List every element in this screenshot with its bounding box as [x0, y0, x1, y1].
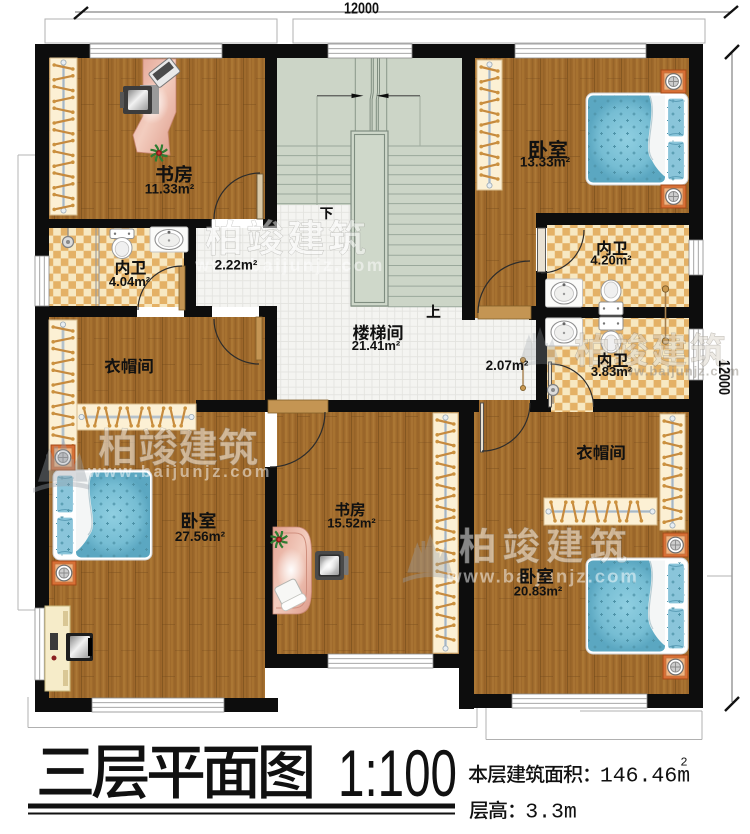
svg-text:2.22m²: 2.22m² [215, 257, 258, 272]
svg-text:1:100: 1:100 [338, 736, 457, 810]
svg-text:11.33m²: 11.33m² [145, 181, 195, 196]
svg-text:146.46m: 146.46m [600, 765, 690, 789]
svg-text:www.baijunjz.com: www.baijunjz.com [87, 463, 272, 481]
svg-text:4.04m²: 4.04m² [109, 274, 151, 289]
svg-text:2: 2 [680, 755, 687, 769]
svg-text:3.3m: 3.3m [525, 801, 577, 825]
svg-text:2.07m²: 2.07m² [486, 358, 529, 373]
svg-text:21.41m²: 21.41m² [352, 338, 401, 353]
svg-text:27.56m²: 27.56m² [175, 529, 226, 544]
svg-text:15.52m²: 15.52m² [327, 516, 376, 531]
svg-text:12000: 12000 [715, 360, 732, 395]
svg-text:4.20m²: 4.20m² [590, 253, 632, 268]
svg-text:3.83m²: 3.83m² [591, 364, 633, 379]
svg-text:13.33m²: 13.33m² [520, 154, 571, 169]
svg-text:12000: 12000 [344, 1, 379, 18]
svg-text:20.83m²: 20.83m² [514, 584, 563, 599]
